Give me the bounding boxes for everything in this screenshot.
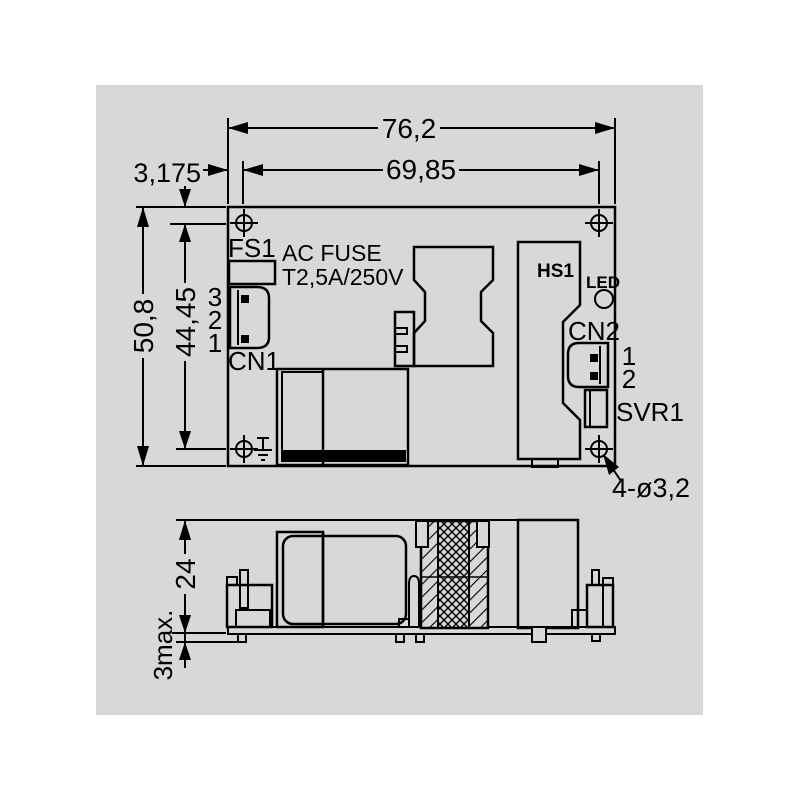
cn1-pin1-pad (241, 335, 249, 343)
dim-height-holes-value: 44,45 (170, 287, 201, 357)
technical-drawing: FS1 AC FUSE T2,5A/250V CN1 3 2 1 (0, 0, 800, 800)
cn1-pin3-pad (241, 295, 249, 303)
cn1-ref-label: CN1 (228, 346, 280, 376)
cn2-ref-label: CN2 (568, 316, 620, 346)
fuse-ref-label: FS1 (228, 233, 276, 263)
cn2-pin1-pad (590, 354, 598, 362)
bobbin-flange-right (477, 521, 489, 547)
cn2-pin2-label: 2 (622, 364, 636, 394)
svr-ref-label: SVR1 (616, 397, 684, 427)
dim-hole-offset-value: 3,175 (133, 158, 201, 188)
cn1-pin1-label: 1 (208, 328, 222, 358)
dim-height-overall-value: 50,8 (128, 299, 159, 354)
bobbin-flange-left (416, 521, 428, 547)
fuse-note-line1: AC FUSE (282, 240, 382, 266)
dim-pin-protrusion-value: 3max. (148, 610, 178, 681)
dim-width-holes-value: 69,85 (386, 154, 456, 185)
mechanical-drawing-page: FS1 AC FUSE T2,5A/250V CN1 3 2 1 (0, 0, 800, 800)
capacitor-black-band (283, 450, 406, 462)
hole-note-label: 4-ø3,2 (612, 473, 690, 503)
cn2-pin2-pad (590, 372, 598, 380)
heatsink-pin-tab (532, 627, 546, 642)
dim-component-height-value: 24 (170, 558, 201, 589)
heatsink-ref-label: HS1 (537, 261, 574, 282)
transformer-side (416, 521, 489, 628)
dim-width-overall-value: 76,2 (382, 113, 437, 144)
fuse-note-line2: T2,5A/250V (282, 264, 404, 290)
